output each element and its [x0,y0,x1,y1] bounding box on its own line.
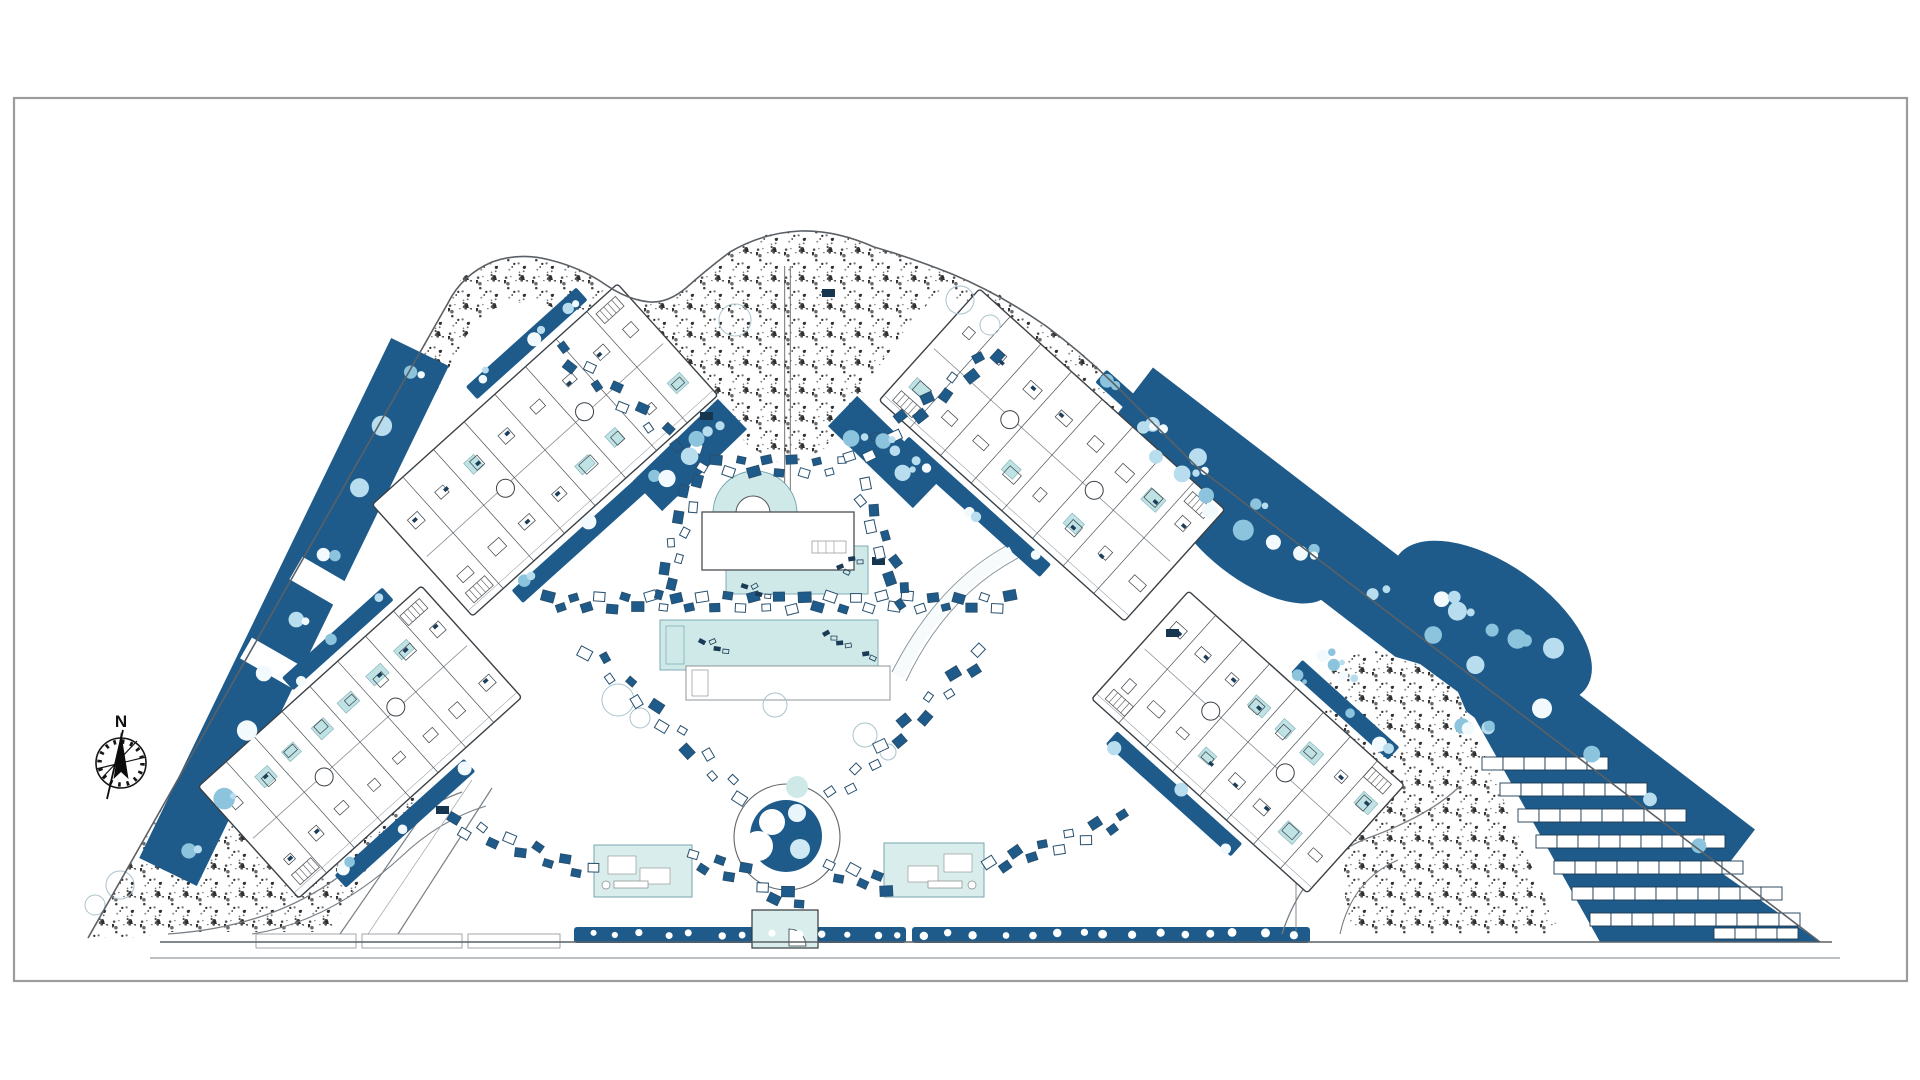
curb-strip [468,934,560,948]
umbrella-square [927,593,939,603]
parking-stall [1756,928,1777,939]
parking-stall [1722,861,1743,874]
lounger-square [1080,836,1091,845]
umbrella-square [736,456,746,464]
sun-deck [686,666,890,700]
tree-circle [875,433,891,449]
hedge-tree-dot [612,932,618,938]
hedge-tree-dot [1228,928,1237,937]
umbrella-square [571,868,581,877]
umbrella-square [869,504,879,516]
parking-stall [1575,861,1596,874]
parking-stall [1701,861,1722,874]
parking-stall [1599,835,1620,848]
parking-stall [1593,887,1614,900]
tree-circle [194,845,202,853]
hedge-tree-dot [894,932,900,938]
lounger-square [688,502,697,513]
pavilion-detail [614,881,648,888]
parking-stall [1554,861,1575,874]
hedge-tree-dot [1261,928,1270,937]
parking-stall [1566,757,1587,770]
pavilion-room [908,866,938,882]
umbrella-square [659,562,670,575]
tree-circle [1189,448,1207,466]
hedge-tree-dot [944,929,951,936]
utility-box [822,289,835,297]
lounger-square [864,520,876,534]
parking-stall [1590,913,1611,926]
parking-stall [1662,835,1683,848]
tree-circle [1462,722,1475,735]
lounger-square [1064,829,1074,838]
tree-circle [317,548,330,561]
parking-stall [1632,913,1653,926]
umbrella-square [739,862,752,873]
umbrella-square [966,603,977,612]
parking-stall [1611,913,1632,926]
tree-circle [843,430,860,447]
parking-stall [1500,783,1521,796]
tree-circle [418,371,425,378]
hedge-tree-dot [719,932,726,939]
hedge-tree-dot [844,932,850,938]
lounger-square [860,477,872,490]
lounger-square [659,604,668,612]
tree-circle [302,617,310,625]
tree-circle [1338,671,1348,681]
parking-stall [1578,835,1599,848]
umbrella-square [833,874,844,883]
parking-stall [1545,757,1566,770]
tree-circle [1520,634,1532,646]
parking-stall [1482,757,1503,770]
pavilion-room [608,856,636,874]
umbrella-square [812,457,822,466]
parking-stall [1680,861,1701,874]
north-label: N [115,712,127,731]
umbrella-square [941,603,951,611]
umbrella-square [786,455,797,464]
umbrella-square [673,511,684,524]
tree-circle [1262,503,1269,510]
parking-stall [1641,835,1662,848]
plaza-tree [790,839,810,859]
parking-stall [1620,835,1641,848]
tree-circle [1383,585,1391,593]
umbrella-square [723,591,733,600]
parking-stall [1758,913,1779,926]
hedge-tree-dot [1128,931,1136,939]
hedge-tree-dot [1081,929,1088,936]
umbrella-square [880,886,893,897]
parking-stall [1704,835,1725,848]
parking-stall [1695,913,1716,926]
umbrella-square [515,848,527,858]
tree-circle [1583,746,1600,763]
tree-circle [1434,591,1450,607]
umbrella-square [782,886,795,896]
lounger-square [593,592,605,602]
plaza-tree [743,831,773,861]
tree-circle [1192,469,1199,476]
umbrella-square [761,455,773,465]
tree-circle [289,612,305,628]
parking-stall [1557,835,1578,848]
hedge-tree-dot [1003,932,1010,939]
parking-stall [1503,757,1524,770]
hedge-tree-dot [685,929,692,936]
plaza-pool-notch [786,776,808,798]
tree-circle [1174,466,1191,483]
parking-stall [1626,783,1647,796]
tree-circle [1317,649,1330,662]
hedge-tree-dot [1098,930,1107,939]
lounger-square [825,468,834,476]
parking-stall [1635,887,1656,900]
parking-stall [1536,835,1557,848]
hedge-tree-dot [1157,929,1165,937]
parking-stall [1653,913,1674,926]
parking-stall [1659,861,1680,874]
tree-circle [1350,675,1358,683]
parking-stall [1665,809,1686,822]
tree-circle [1202,503,1218,519]
parking-stall [1716,913,1737,926]
umbrella-square [774,469,784,477]
parking-stall [1563,783,1584,796]
lounger-square [1053,844,1065,855]
tree-circle [1339,660,1345,666]
umbrella-square [666,578,677,591]
lounger-square [874,546,886,559]
umbrella-square [677,484,689,498]
parking-stall [1539,809,1560,822]
pavilion-room [944,854,972,872]
parking-stall [1714,928,1735,939]
parking-stall [1638,861,1659,874]
tree-circle [1484,721,1495,732]
tree-circle [1293,546,1308,561]
umbrella-square [606,604,618,614]
plaza-tree [788,804,806,822]
lounger-square [762,604,771,611]
parking-stall [1761,887,1782,900]
hedge-tree-dot [1206,930,1214,938]
tree-circle [1532,698,1552,718]
parking-stall [1623,809,1644,822]
parking-stall [1719,887,1740,900]
tree-circle [1328,648,1336,656]
hedge-tree-dot [1182,931,1190,939]
tree-circle [1643,793,1657,807]
lounger-square [851,594,862,603]
hedge-tree-dot [1290,931,1298,939]
parking-stall [1518,809,1539,822]
lounger-square [588,863,599,872]
umbrella-square [723,872,735,882]
parking-stall [1572,887,1593,900]
parking-stall [1656,887,1677,900]
utility-box [436,806,449,814]
tree-circle [702,426,712,436]
parking-stall [1524,757,1545,770]
hedge-tree-dot [666,932,673,939]
utility-box [1166,629,1179,637]
parking-stall [1542,783,1563,796]
parking-stall [1521,783,1542,796]
pavilion-detail [968,881,976,889]
tree-circle [329,550,340,561]
tree-circle [230,793,236,799]
tree-circle [1448,602,1467,621]
hedge-tree-dot [768,929,775,936]
tree-circle [1543,638,1564,659]
parking-stall [1737,913,1758,926]
umbrella-square [773,592,784,601]
parking-stall [1581,809,1602,822]
tree-circle [1137,421,1150,434]
umbrella-square [710,455,723,466]
parking-stall [1602,809,1623,822]
curb-strip [256,934,356,948]
umbrella-square [798,592,811,603]
parking-stall [1605,783,1626,796]
hedge-tree-dot [920,932,928,940]
hedge-tree-dot [635,929,642,936]
plan-sheet: N [0,0,1920,1080]
parking-stall [1617,861,1638,874]
hedge-tree-dot [875,932,882,939]
lounger-square [667,538,674,547]
hedge-tree-dot [591,930,597,936]
parking-stall [1677,887,1698,900]
tree-circle [1328,659,1340,671]
tree-circle [350,478,369,497]
parking-stall [1674,913,1695,926]
parking-stall [1584,783,1605,796]
parking-stall [1614,887,1635,900]
tree-circle [1149,450,1163,464]
tree-circle [861,433,869,441]
lounger-square [735,604,746,613]
tree-circle [1486,624,1499,637]
tree-circle [1233,520,1254,541]
hedge-tree-dot [968,931,976,939]
pavilion-detail [928,881,962,888]
lounger-square [757,883,769,892]
lounger-mark [836,640,843,645]
tree-circle [1448,591,1461,604]
tree-circle [658,470,675,487]
tree-circle [1466,656,1484,674]
parking-stall [1735,928,1756,939]
tree-circle [890,446,901,457]
lounger-square [695,591,709,603]
tree-circle [256,665,272,681]
pavilion-detail [602,881,610,889]
hedge-tree-dot [1029,932,1037,940]
umbrella-square [684,603,695,612]
curb-strip [362,934,462,948]
parking-stall [1560,809,1581,822]
hedge-tree-dot [818,930,825,937]
tree-circle [909,466,915,472]
lounger-square [991,604,1003,614]
tree-circle [889,436,896,443]
umbrella-square [559,854,571,864]
parking-stall [1698,887,1719,900]
tree-circle [1198,488,1214,504]
tree-circle [1424,626,1442,644]
parking-stall [1777,928,1798,939]
tree-circle [895,465,911,481]
tree-circle [689,431,705,447]
umbrella-square [1003,589,1017,601]
hedge-tree-dot [795,930,804,939]
plaza-tree [759,809,785,835]
umbrella-square [710,603,720,611]
hedge-tree-dot [739,932,746,939]
utility-box [700,412,713,420]
parking-stall [1596,861,1617,874]
tree-circle [1467,608,1475,616]
tree-circle [681,448,699,466]
umbrella-square [900,583,908,593]
hedge-tree-dot [1053,929,1061,937]
site-plan: N [0,0,1920,1080]
umbrella-square [632,602,644,612]
umbrella-square [794,900,804,908]
tree-circle [1266,535,1281,550]
umbrella-square [670,593,683,604]
umbrella-square [1037,840,1047,849]
tree-circle [237,720,257,740]
tree-circle [715,421,724,430]
